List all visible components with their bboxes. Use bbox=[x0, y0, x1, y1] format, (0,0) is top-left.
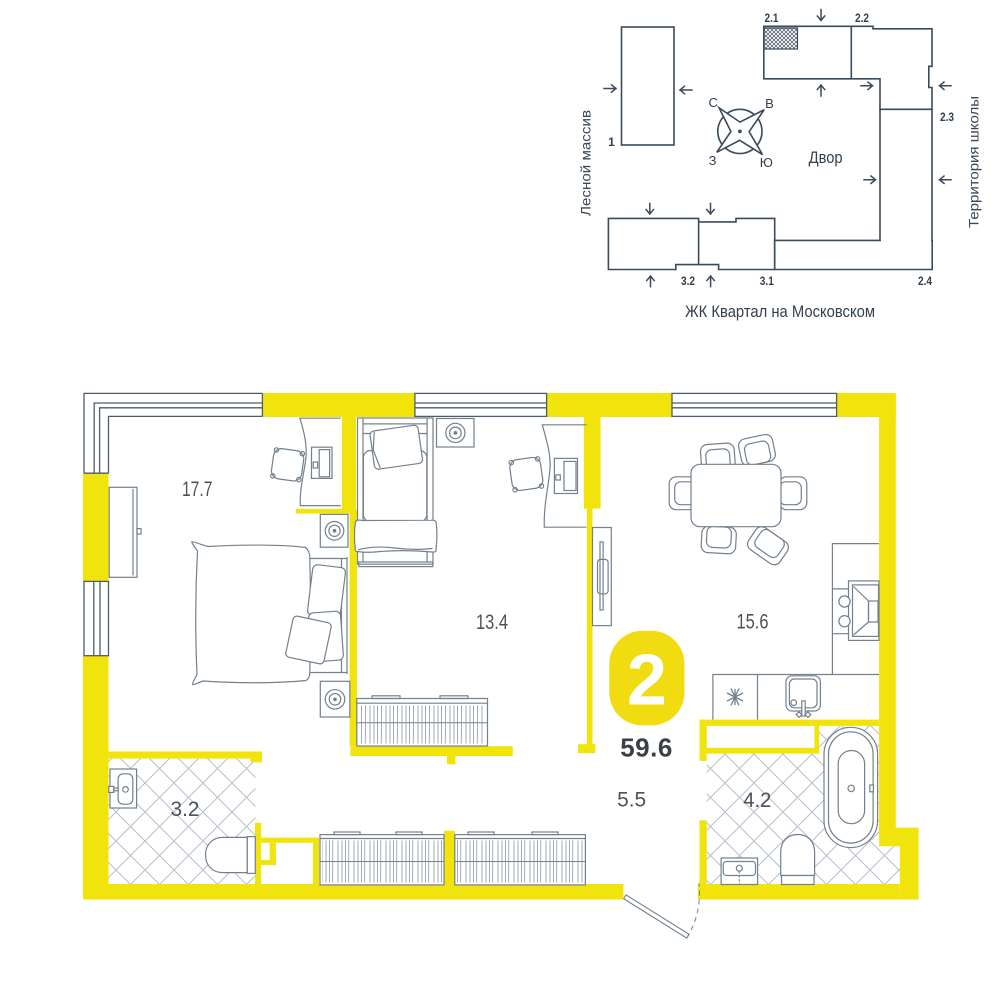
svg-text:В: В bbox=[765, 96, 774, 111]
svg-text:2: 2 bbox=[627, 641, 667, 721]
svg-text:ЖК Квартал на Московском: ЖК Квартал на Московском bbox=[685, 302, 875, 321]
svg-text:Двор: Двор bbox=[809, 148, 843, 167]
svg-text:59.6: 59.6 bbox=[620, 733, 673, 763]
svg-text:4.2: 4.2 bbox=[743, 788, 771, 812]
svg-text:С: С bbox=[709, 95, 718, 110]
svg-text:Ю: Ю bbox=[760, 155, 773, 170]
svg-text:13.4: 13.4 bbox=[476, 610, 508, 634]
svg-text:2.2: 2.2 bbox=[855, 11, 869, 25]
svg-text:Территория школы: Территория школы bbox=[966, 96, 982, 228]
svg-text:2.4: 2.4 bbox=[918, 274, 932, 288]
svg-text:15.6: 15.6 bbox=[737, 610, 769, 634]
svg-text:5.5: 5.5 bbox=[617, 787, 646, 811]
svg-text:3.2: 3.2 bbox=[171, 797, 200, 821]
svg-text:2.1: 2.1 bbox=[765, 11, 779, 25]
svg-text:3.2: 3.2 bbox=[681, 274, 695, 288]
svg-text:Лесной массив: Лесной массив bbox=[578, 110, 594, 216]
svg-text:1: 1 bbox=[608, 135, 615, 149]
svg-text:3.1: 3.1 bbox=[760, 274, 774, 288]
svg-text:2.3: 2.3 bbox=[940, 110, 954, 124]
svg-text:17.7: 17.7 bbox=[182, 477, 213, 501]
svg-text:З: З bbox=[709, 153, 717, 168]
